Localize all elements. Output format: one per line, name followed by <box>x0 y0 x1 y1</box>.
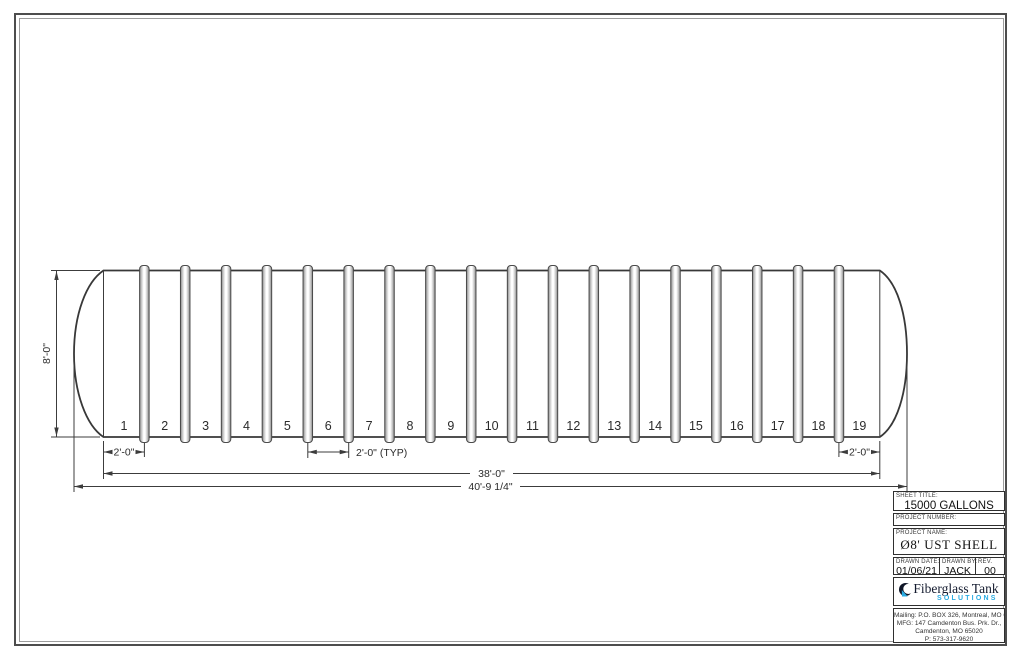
tank-rib <box>712 266 722 443</box>
bay-number-label: 19 <box>852 419 866 433</box>
tank-rib <box>507 266 517 443</box>
dim-height-text: 8'-0" <box>41 343 53 364</box>
tank-rib <box>426 266 436 443</box>
bay-number-label: 5 <box>284 419 291 433</box>
project-name-cell: PROJECT NAME: Ø8' UST SHELL <box>893 528 1005 555</box>
sheet-title-cell: SHEET TITLE: 15000 GALLONS <box>893 491 1005 511</box>
bay-number-label: 2 <box>161 419 168 433</box>
drawn-by-cell: DRAWN BY: JACK <box>939 558 975 574</box>
dim-right-bay: 2'-0" <box>839 443 880 459</box>
logo-swoosh-icon <box>899 582 912 597</box>
bay-number-label: 4 <box>243 419 250 433</box>
tank-rib <box>793 266 803 443</box>
dim-left-bay-text: 2'-0" <box>114 447 135 459</box>
tank-rib <box>630 266 640 443</box>
bay-number-label: 17 <box>771 419 785 433</box>
drawn-date-value: 01/06/21 <box>894 566 939 575</box>
rev-cell: REV. 00 <box>975 558 1004 574</box>
bay-number-label: 3 <box>202 419 209 433</box>
dim-left-bay: 2'-0" <box>104 443 145 459</box>
sheet-title-label: SHEET TITLE: <box>894 492 1004 500</box>
revision-row: DRAWN DATE: 01/06/21 DRAWN BY: JACK REV.… <box>893 557 1005 575</box>
rev-value: 00 <box>976 566 1004 575</box>
fiberglass-tank-logo: Fiberglass Tank SOLUTIONS <box>899 581 998 602</box>
bay-number-label: 8 <box>406 419 413 433</box>
tank-rib <box>180 266 190 443</box>
dim-shell-length: 38'-0" <box>104 441 880 480</box>
tank-rib <box>671 266 681 443</box>
bay-number-label: 14 <box>648 419 662 433</box>
tank-rib <box>303 266 313 443</box>
tank-drawing: 12345678910111213141516171819 8'-0" 2'-0… <box>0 0 1024 661</box>
tank-outline <box>74 271 907 438</box>
tank-rib <box>385 266 395 443</box>
tank-rib <box>834 266 844 443</box>
sheet-title-value: 15000 GALLONS <box>894 500 1004 511</box>
bay-number-label: 1 <box>120 419 127 433</box>
tank-rib <box>752 266 762 443</box>
logo-cell: Fiberglass Tank SOLUTIONS <box>893 577 1005 606</box>
dim-shell-length-text: 38'-0" <box>478 468 505 480</box>
bay-number-label: 18 <box>812 419 826 433</box>
dim-typical-bay: 2'-0" (TYP) <box>308 443 407 459</box>
address-line: Camdenton, MO 65020 <box>894 628 1004 636</box>
tank-rib <box>140 266 150 443</box>
title-block: SHEET TITLE: 15000 GALLONS PROJECT NUMBE… <box>893 491 1005 643</box>
bay-number-label: 6 <box>325 419 332 433</box>
address-line: MFG: 147 Camdenton Bus. Prk. Dr., <box>894 620 1004 628</box>
bay-number-label: 11 <box>526 419 539 433</box>
address-line: Mailing: P.O. BOX 326, Montreal, MO 6559… <box>894 612 1004 620</box>
bay-number-label: 15 <box>689 419 703 433</box>
bay-number-label: 13 <box>607 419 621 433</box>
tank-rib <box>589 266 599 443</box>
drawn-date-cell: DRAWN DATE: 01/06/21 <box>894 558 939 574</box>
drawn-by-value: JACK <box>940 566 975 575</box>
dim-overall-length-text: 40'-9 1/4" <box>468 481 513 493</box>
bay-number-label: 12 <box>566 419 580 433</box>
dim-right-bay-text: 2'-0" <box>849 447 870 459</box>
tank-rib <box>262 266 272 443</box>
address-line: P: 573-317-9620 <box>894 636 1004 643</box>
tank-rib <box>344 266 354 443</box>
bay-number-label: 9 <box>447 419 454 433</box>
dim-typical-bay-text: 2'-0" (TYP) <box>356 447 407 459</box>
project-name-label: PROJECT NAME: <box>894 529 1004 537</box>
bay-number-label: 16 <box>730 419 744 433</box>
bay-number-label: 10 <box>485 419 499 433</box>
project-number-label: PROJECT NUMBER: <box>894 514 1004 522</box>
tank-rib <box>548 266 558 443</box>
bay-number-label: 7 <box>366 419 373 433</box>
tank-rib <box>221 266 231 443</box>
project-name-value: Ø8' UST SHELL <box>894 537 1004 552</box>
drawing-sheet: { "drawing": { "bay_labels": ["1","2","3… <box>0 0 1024 661</box>
address-cell: Mailing: P.O. BOX 326, Montreal, MO 6559… <box>893 608 1005 643</box>
project-number-cell: PROJECT NUMBER: <box>893 513 1005 526</box>
tank-rib <box>466 266 476 443</box>
